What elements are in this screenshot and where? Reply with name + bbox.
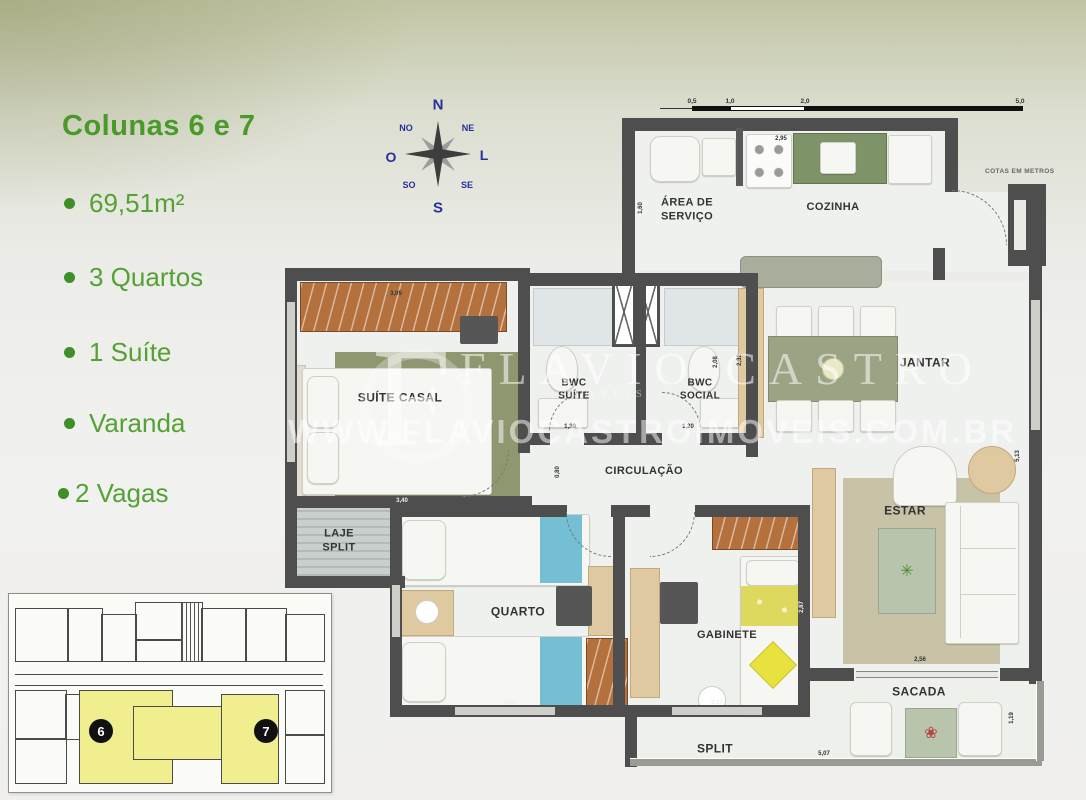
keyplan-room: [15, 738, 67, 784]
room-label-cozinha: COZINHA: [807, 201, 860, 215]
kitchen-bench: [740, 256, 882, 288]
room-label-gabinete: GABINETE: [697, 629, 757, 643]
service-sink: [702, 138, 736, 176]
keyplan-room: [201, 608, 247, 662]
dim-label: 1,60: [638, 202, 644, 214]
keyplan: 6 7: [8, 593, 332, 793]
wall: [390, 505, 567, 517]
bullet-icon: [64, 418, 75, 429]
scale-label: 2,0: [800, 98, 809, 105]
wall: [945, 118, 958, 192]
balcony-rail: [1036, 681, 1044, 761]
balcony-table: ❀: [905, 708, 957, 758]
compass-se: SE: [461, 180, 473, 190]
gabinete-wardrobe: [712, 512, 808, 550]
room-label-split: SPLIT: [697, 742, 733, 757]
keyplan-room: [15, 608, 69, 662]
sliding-door: [856, 671, 998, 678]
lamp: [415, 600, 439, 624]
compass-s: S: [433, 200, 443, 217]
watermark-name: FLAVIO CASTRO: [460, 342, 985, 395]
compass-n: N: [433, 97, 444, 114]
dining-chair: [818, 306, 854, 338]
feature-area: 69,51m²: [64, 188, 184, 219]
balcony-chair: [850, 702, 892, 756]
pillow: [746, 560, 800, 586]
room-label-servico: ÁREA DE SERVIÇO: [661, 196, 713, 224]
feature-quartos: 3 Quartos: [64, 262, 203, 293]
keyplan-room: [135, 602, 183, 640]
feature-label: 1 Suíte: [89, 337, 171, 368]
page-title: Colunas 6 e 7: [62, 110, 255, 143]
desk-chair: [660, 582, 698, 624]
shower-box: [533, 288, 617, 346]
wall: [622, 118, 958, 131]
feature-suite: 1 Suíte: [64, 337, 171, 368]
sofa-cushion-line: [960, 506, 961, 638]
compass-l: L: [480, 147, 489, 163]
sofa-cushion-line: [960, 548, 1016, 549]
keyplan-room: [285, 690, 325, 736]
window: [392, 585, 400, 637]
scale-label: 5,0: [1015, 98, 1024, 105]
sofa-cushion-line: [960, 594, 1016, 595]
dim-label: 0,80: [555, 466, 561, 478]
keyplan-badge-7: 7: [254, 719, 278, 743]
shaft-x-icon: [614, 279, 634, 345]
scale-segment: [730, 106, 805, 111]
room-label-circulacao: CIRCULAÇÃO: [605, 465, 683, 479]
scale-bar: 0,5 1,0 2,0 5,0: [660, 98, 1032, 114]
wall: [695, 505, 810, 517]
keyplan-room: [285, 614, 325, 662]
shower-box: [664, 288, 742, 346]
stove: [746, 134, 792, 188]
laundry-tub: [650, 136, 700, 182]
keyplan-unit-corridor: [133, 706, 223, 760]
keyplan-room: [15, 690, 67, 740]
room-label-laje: LAJE SPLIT: [322, 527, 355, 555]
dining-chair: [776, 306, 812, 338]
window: [455, 707, 555, 715]
dim-label: 1,19: [1009, 712, 1015, 724]
watermark-sub: IMÓVEIS: [560, 388, 648, 400]
scale-label: 0,5: [687, 98, 696, 105]
kitchen-sink: [820, 142, 856, 174]
wall: [285, 268, 530, 281]
room-label-quarto: QUARTO: [491, 605, 545, 620]
dim-label: 2,95: [775, 136, 787, 142]
cotas-note: COTAS EM METROS: [985, 168, 1054, 175]
yellow-blanket: [741, 586, 803, 626]
keyplan-room: [135, 640, 183, 662]
keyplan-room: [245, 608, 287, 662]
watermark-url: WWW.FLAVIOCASTROIMOVEIS.COM.BR: [288, 413, 1017, 451]
bullet-icon: [64, 198, 75, 209]
bullet-icon: [64, 272, 75, 283]
sofa: [945, 502, 1019, 644]
balcony-rail: [630, 758, 1042, 766]
feature-label: Varanda: [89, 408, 185, 439]
keyplan-corridor: [15, 674, 323, 686]
feature-vagas: 2 Vagas: [58, 478, 168, 509]
desk: [630, 568, 660, 698]
wall-east: [1029, 192, 1042, 684]
window: [672, 707, 762, 715]
room-label-sacada: SACADA: [892, 685, 946, 700]
wall-stub: [806, 668, 854, 681]
compass-no: NO: [399, 123, 413, 133]
bed-runner: [540, 637, 582, 705]
keyplan-badge-6: 6: [89, 719, 113, 743]
dim-label: 5,13: [1015, 450, 1021, 462]
keyplan-room: [285, 734, 325, 784]
suite-tv: [460, 316, 498, 344]
wall-stub: [933, 248, 945, 280]
dim-label: 5,07: [818, 751, 830, 757]
balcony-chair: [958, 702, 1002, 756]
dim-label: 2,87: [799, 601, 805, 613]
pillow: [402, 520, 446, 580]
wall: [622, 118, 635, 280]
armchair: [893, 446, 957, 506]
feature-label: 3 Quartos: [89, 262, 203, 293]
keyplan-room: [101, 614, 137, 662]
scale-segment: [692, 106, 730, 111]
scale-label: 1,0: [725, 98, 734, 105]
dim-label: 3,00: [504, 700, 516, 706]
pillow: [402, 642, 446, 702]
bullet-icon: [58, 488, 69, 499]
column-notch: [1014, 200, 1026, 250]
keyplan-room: [67, 608, 103, 662]
feature-label: 2 Vagas: [75, 478, 168, 509]
wall-stub: [736, 128, 743, 186]
room-label-estar: ESTAR: [884, 504, 926, 519]
tv-panel: [812, 468, 836, 618]
coffee-table: ✳: [878, 528, 936, 614]
side-table: [968, 446, 1016, 494]
feature-label: 69,51m²: [89, 188, 184, 219]
feature-varanda: Varanda: [64, 408, 185, 439]
dim-label: 2,56: [914, 657, 926, 663]
wall-stub: [1000, 668, 1042, 681]
dim-label: 3,40: [396, 498, 408, 504]
keyplan-stairs: [181, 602, 203, 662]
compass-so: SO: [402, 180, 415, 190]
dim-label: 3,05: [390, 291, 402, 297]
scale-segment: [660, 108, 692, 109]
wall: [613, 505, 625, 717]
compass-rose: N S O L NO NE SO SE: [383, 95, 493, 217]
bullet-icon: [64, 347, 75, 358]
slide: Colunas 6 e 7 69,51m² 3 Quartos 1 Suíte …: [0, 0, 1086, 800]
compass-o: O: [386, 149, 397, 165]
desk-chair: [556, 586, 592, 626]
dim-label: 2,17: [711, 700, 723, 706]
compass-ne: NE: [462, 123, 475, 133]
scale-segment: [805, 106, 1023, 111]
wall: [285, 576, 405, 588]
window: [1031, 300, 1040, 430]
dining-chair: [860, 306, 896, 338]
kitchen-cabinet: [888, 135, 932, 184]
